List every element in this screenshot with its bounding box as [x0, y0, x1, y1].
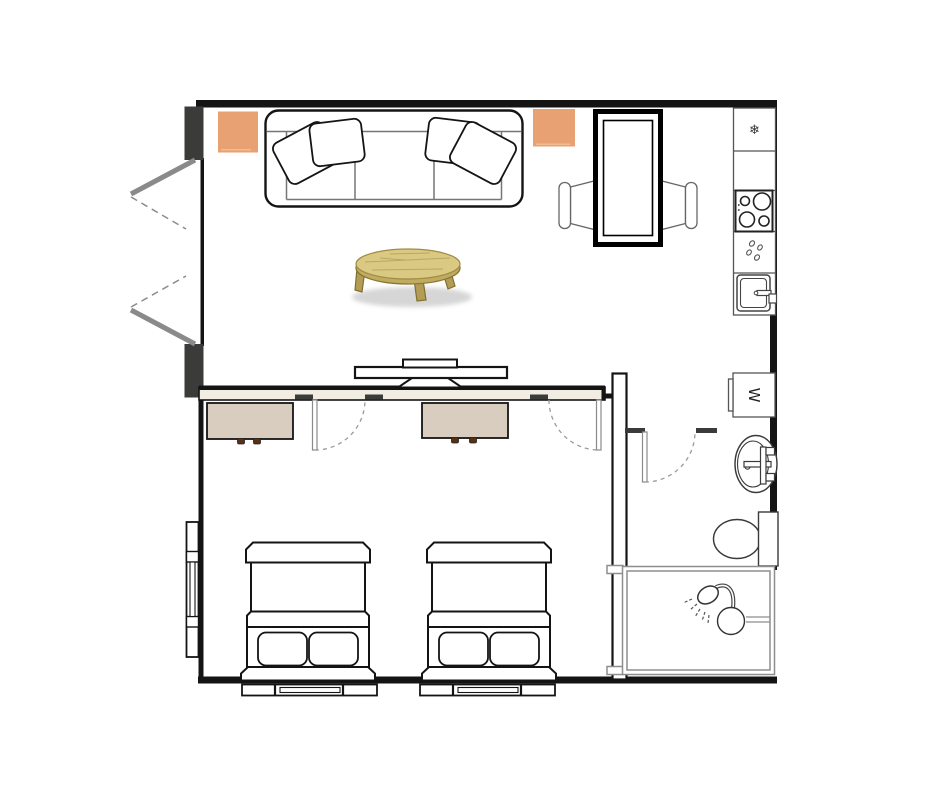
entry-jamb-top [185, 107, 204, 161]
knob [254, 439, 261, 445]
entry-door-swing-top [131, 197, 186, 229]
dining-chair-left[interactable] [559, 181, 596, 231]
tv-mount [403, 360, 457, 368]
entry-door-leaf-top[interactable] [131, 160, 195, 194]
kitchen-sink[interactable] [737, 275, 777, 311]
toilet[interactable] [714, 512, 779, 566]
faucet-icon [744, 462, 771, 468]
cushion-highlight [536, 144, 570, 146]
floor-cushion-right[interactable] [533, 109, 575, 147]
door-jamb [530, 395, 548, 400]
entry-double-door[interactable] [131, 107, 204, 398]
window-left-wall [187, 522, 199, 657]
sofa-pillow[interactable] [309, 118, 366, 167]
bathroom-door[interactable] [625, 428, 717, 482]
entry-door-leaf-bottom[interactable] [131, 310, 195, 344]
snowflake-icon: ❄ [749, 123, 760, 138]
door-leaf[interactable] [313, 400, 318, 450]
knob [452, 438, 459, 444]
cooktop[interactable] [736, 191, 773, 232]
knob [238, 439, 245, 445]
entry-door-swing-bottom [131, 276, 186, 307]
floor-plan-canvas: ❄ [0, 0, 940, 788]
door-swing [645, 432, 695, 482]
door-swing [549, 400, 599, 450]
dresser-2[interactable] [422, 403, 508, 443]
knob [470, 438, 477, 444]
dining-chair-right[interactable] [660, 181, 697, 231]
bathroom-sink[interactable] [735, 436, 777, 493]
coffee-table[interactable] [352, 249, 472, 307]
dresser-1[interactable] [207, 403, 293, 444]
shower[interactable] [607, 566, 775, 675]
door-jamb [295, 395, 313, 400]
door-leaf[interactable] [643, 432, 648, 482]
toilet-tank [759, 512, 779, 566]
wall-top [196, 100, 777, 108]
bedroom-door-2[interactable] [549, 400, 601, 450]
kitchen-unit[interactable]: ❄ [734, 108, 777, 315]
tv-screen [355, 367, 507, 378]
shadow [352, 287, 472, 307]
tv-stand [398, 378, 462, 388]
dining-table[interactable] [596, 112, 661, 245]
bedroom-door-1[interactable] [313, 400, 366, 450]
bed-2[interactable] [422, 543, 556, 681]
wall-left-threshold [201, 158, 205, 346]
toilet-bowl [714, 520, 761, 559]
washer-icon: W [745, 388, 763, 403]
sofa[interactable] [266, 111, 523, 207]
tv-console[interactable] [355, 360, 507, 388]
floor-plan: ❄ [0, 0, 940, 788]
door-jamb [365, 395, 383, 400]
window-bed-1 [242, 685, 377, 696]
floor-cushion-left[interactable] [218, 112, 258, 153]
bed-1[interactable] [241, 543, 375, 681]
window-bed-2 [420, 685, 555, 696]
door-jamb [696, 428, 717, 433]
door-swing [315, 400, 365, 450]
door-leaf[interactable] [597, 400, 602, 450]
washing-machine[interactable]: W [729, 373, 776, 417]
cushion-highlight [221, 149, 251, 151]
